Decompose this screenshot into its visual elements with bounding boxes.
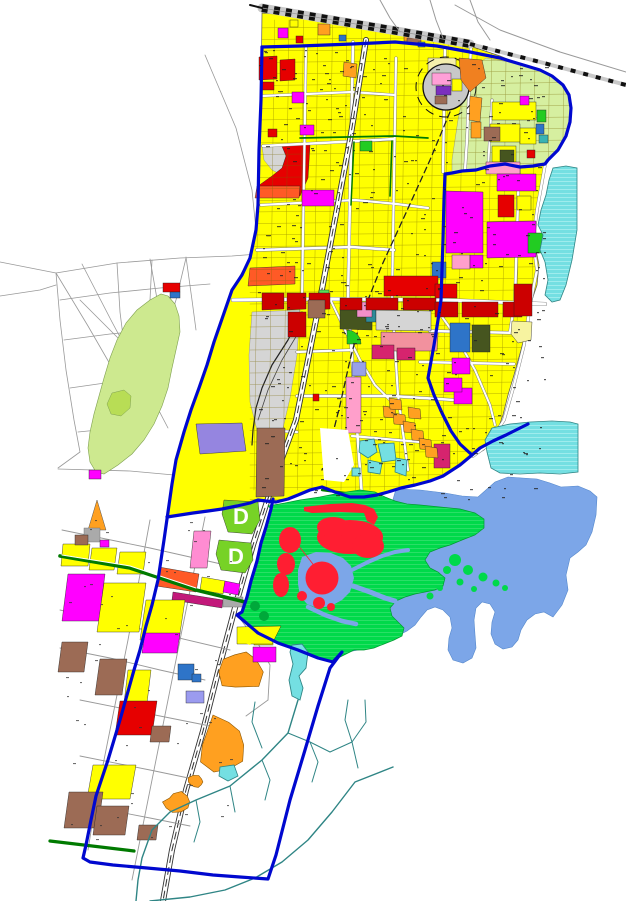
svg-text:D: D (228, 544, 244, 569)
